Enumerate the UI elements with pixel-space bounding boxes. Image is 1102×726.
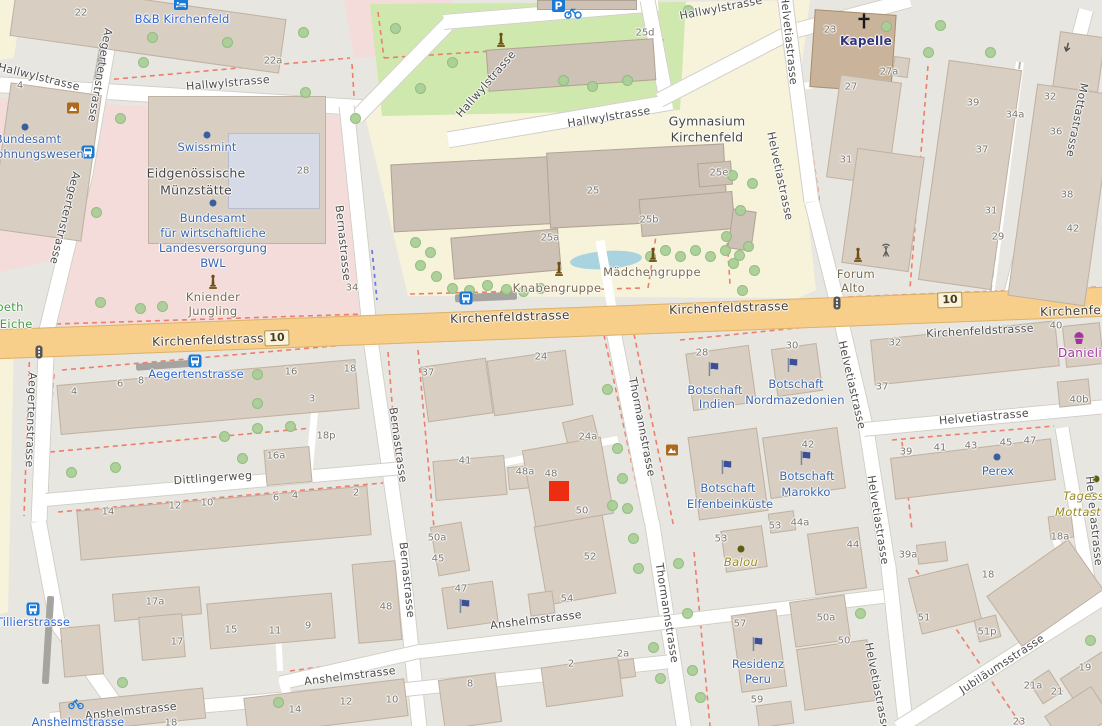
housenumber-label: 34 (346, 283, 359, 294)
housenumber-label: 39a (899, 550, 918, 561)
memorial-icon (648, 247, 658, 264)
housenumber-label: 25 (587, 186, 600, 197)
bus-icon (27, 603, 40, 616)
poi-label: Kniender (186, 290, 240, 304)
tree-icon (390, 23, 401, 34)
flag-icon (458, 598, 473, 614)
artwork-icon (666, 445, 678, 456)
housenumber-label: 31 (985, 206, 998, 217)
housenumber-label: 29 (992, 232, 1005, 243)
housenumber-label: 50a (817, 613, 836, 624)
tree-icon (633, 563, 644, 574)
building (390, 156, 563, 233)
tree-icon (558, 75, 569, 86)
selected-location-marker[interactable] (549, 481, 569, 501)
building (916, 541, 948, 565)
tree-icon (219, 431, 230, 442)
housenumber-label: 47 (1024, 436, 1037, 447)
housenumber-label: 2 (568, 659, 574, 670)
tree-icon (705, 251, 716, 262)
housenumber-label: 17a (146, 597, 165, 608)
housenumber-label: 16a (267, 451, 286, 462)
housenumber-label: 39 (900, 447, 913, 458)
guesthouse-icon (174, 0, 188, 10)
housenumber-label: 52 (584, 552, 597, 563)
housenumber-label: 48a (516, 467, 535, 478)
poi-label: Mottast (1055, 505, 1101, 519)
building (1062, 322, 1102, 368)
tree-icon (425, 247, 436, 258)
housenumber-label: 25a (541, 233, 560, 244)
tree-icon (350, 113, 361, 124)
flag-icon (720, 459, 735, 475)
tree-icon (415, 260, 426, 271)
housenumber-label: 53 (715, 534, 728, 545)
housenumber-label: 44 (847, 540, 860, 551)
housenumber-label: 51p (977, 627, 996, 638)
tree-icon (617, 473, 628, 484)
tree-icon (660, 245, 671, 256)
poi-label: Forum (837, 267, 875, 281)
tree-icon (881, 21, 892, 32)
housenumber-label: 45 (1000, 438, 1013, 449)
housenumber-label: 42 (1067, 224, 1080, 235)
poi-label: Balou (724, 555, 758, 569)
poi-label: B&B Kirchenfeld (135, 12, 230, 26)
housenumber-label: 45 (432, 554, 445, 565)
tree-icon (687, 665, 698, 676)
tree-icon (622, 75, 633, 86)
housenumber-label: 59 (751, 695, 764, 706)
flag-icon (707, 361, 722, 377)
route-badge-10: 10 (937, 292, 963, 309)
route-badge-10: 10 (264, 330, 290, 347)
poi-label: Kapelle (840, 34, 892, 48)
flag-icon (799, 450, 814, 466)
housenumber-label: 41 (934, 443, 947, 454)
housenumber-label: 53 (769, 521, 782, 532)
housenumber-label: 28 (297, 166, 310, 177)
housenumber-label: 3 (309, 394, 315, 405)
tree-icon (587, 81, 598, 92)
housenumber-label: 10 (386, 695, 399, 706)
housenumber-label: 25b (639, 215, 658, 226)
housenumber-label: 42 (802, 440, 815, 451)
poi-dot-icon (22, 124, 29, 131)
housenumber-label: 18a (1051, 532, 1070, 543)
housenumber-label: 10 (201, 498, 214, 509)
tree-icon (735, 205, 746, 216)
memorial-icon (853, 247, 863, 264)
housenumber-label: 12 (169, 501, 182, 512)
housenumber-label: 27 (845, 82, 858, 93)
tree-icon (728, 258, 739, 269)
housenumber-label: 6 (273, 493, 279, 504)
housenumber-label: 24 (535, 352, 548, 363)
housenumber-label: 23 (1013, 717, 1026, 726)
housenumber-label: 2 (353, 488, 359, 499)
poi-label: Marokko (781, 485, 830, 499)
tree-icon (749, 265, 760, 276)
tree-icon (607, 500, 618, 511)
tree-icon (612, 443, 623, 454)
poi-label: Aegertenstrasse (148, 367, 244, 381)
bike-rental-icon (68, 699, 84, 710)
poi-label: Kirchenfeld (671, 130, 744, 145)
tree-icon (648, 642, 659, 653)
tree-icon (447, 283, 458, 294)
housenumber-label: 4 (292, 491, 298, 502)
poi-label: Bundesamt (0, 132, 61, 146)
housenumber-label: 14 (102, 507, 115, 518)
poi-label: Botschaft (768, 377, 823, 391)
housenumber-label: 14 (289, 705, 302, 716)
tree-icon (690, 245, 701, 256)
housenumber-label: 12 (340, 697, 353, 708)
tree-icon (157, 301, 168, 312)
housenumber-label: 27a (880, 67, 899, 78)
poi-label: Münzstätte (160, 183, 232, 198)
housenumber-label: 34a (1006, 110, 1025, 121)
poi-label: BWL (200, 256, 226, 270)
poi-label: Botschaft (779, 469, 834, 483)
housenumber-label: 19 (1079, 663, 1092, 674)
poi-label: Anshelmstrasse (32, 715, 125, 726)
tree-icon (673, 558, 684, 569)
housenumber-label: 37 (976, 145, 989, 156)
artwork-icon (67, 103, 79, 114)
tree-icon (695, 692, 706, 703)
tree-icon (622, 503, 633, 514)
tree-icon (410, 237, 421, 248)
building (60, 624, 104, 677)
tree-icon (675, 251, 686, 262)
poi-label: Bundesamt (180, 211, 247, 225)
housenumber-label: 18 (344, 364, 357, 375)
poi-dot-icon (210, 200, 217, 207)
bus-icon (189, 355, 202, 368)
housenumber-label: 50 (838, 636, 851, 647)
poi-label: Alto (841, 281, 865, 295)
tree-icon (252, 423, 263, 434)
housenumber-label: 21 (1051, 687, 1064, 698)
housenumber-label: 30 (786, 341, 799, 352)
poi-label: für wirtschaftliche (160, 226, 266, 240)
housenumber-label: 32 (1044, 92, 1057, 103)
tree-icon (727, 170, 738, 181)
tree-icon (655, 673, 666, 684)
tree-icon (482, 280, 493, 291)
housenumber-label: 43 (965, 441, 978, 452)
tree-icon (222, 37, 233, 48)
poi-label: Jungling (188, 304, 237, 318)
housenumber-label: 44a (791, 518, 810, 529)
housenumber-label: 51 (918, 613, 931, 624)
housenumber-label: 6 (117, 379, 123, 390)
tree-icon (747, 178, 758, 189)
housenumber-label: 9 (305, 621, 311, 632)
tree-icon (431, 271, 442, 282)
svg-text:P: P (554, 0, 562, 13)
flag-icon (751, 636, 766, 652)
housenumber-label: 32 (889, 338, 902, 349)
tree-icon (147, 32, 158, 43)
poi-label: Botschaft (687, 383, 742, 397)
tree-icon (135, 303, 146, 314)
housenumber-label: 23 (824, 25, 837, 36)
housenumber-label: 16 (285, 367, 298, 378)
tree-icon (237, 453, 248, 464)
housenumber-label: 18p (316, 431, 335, 442)
housenumber-label: 40b (1069, 395, 1088, 406)
housenumber-label: 37 (876, 382, 889, 393)
tree-icon (95, 297, 106, 308)
housenumber-label: 18 (165, 718, 178, 726)
housenumber-label: 54 (561, 594, 574, 605)
poi-label: Indien (699, 397, 735, 411)
housenumber-label: 18 (982, 570, 995, 581)
cupcake-icon (1072, 331, 1086, 345)
housenumber-label: 8 (138, 376, 144, 387)
tree-icon (298, 27, 309, 38)
tree-icon (855, 608, 866, 619)
building (618, 658, 636, 679)
tree-icon (602, 384, 613, 395)
housenumber-label: 48 (380, 602, 393, 613)
bike-parking-icon: P (542, 0, 582, 19)
housenumber-label: 22a (264, 56, 283, 67)
housenumber-label: 47 (455, 584, 468, 595)
tree-icon (115, 113, 126, 124)
tree-icon (721, 231, 732, 242)
housenumber-label: 24a (579, 432, 598, 443)
tree-icon (743, 241, 754, 252)
poi-label: Residenz (732, 657, 784, 671)
traffic-light-icon (834, 297, 841, 310)
housenumber-label: 25d (635, 28, 654, 39)
tree-icon (985, 47, 996, 58)
traffic-light-icon (36, 346, 43, 359)
poi-label: Eidgenössische (147, 166, 246, 181)
tree-icon (252, 369, 263, 380)
housenumber-label: 11 (269, 626, 282, 637)
poi-dot-icon (204, 132, 211, 139)
poi-dot-icon (994, 454, 1001, 461)
tree-icon (447, 57, 458, 68)
housenumber-label: 4 (71, 387, 77, 398)
poi-label: beth (0, 300, 24, 314)
poi-label: Danieli (1058, 346, 1102, 360)
tree-icon (935, 20, 946, 31)
housenumber-label: 15 (225, 625, 238, 636)
poi-label: Tillierstrasse (0, 615, 70, 629)
housenumber-label: 21a (1024, 681, 1043, 692)
tree-icon (138, 57, 149, 68)
housenumber-label: 37 (422, 368, 435, 379)
poi-label: Swissmint (178, 140, 237, 154)
housenumber-label: 36 (1050, 127, 1063, 138)
poi-label: Nordmazedonien (745, 393, 844, 407)
tree-icon (720, 245, 731, 256)
tree-icon (110, 462, 121, 473)
mast-icon (879, 243, 894, 258)
bus-icon (460, 292, 473, 305)
cross-icon (858, 13, 871, 30)
poi-label: -Eiche (0, 317, 33, 331)
tree-icon (415, 83, 426, 94)
housenumber-label: 25e (710, 168, 729, 179)
tree-icon (628, 533, 639, 544)
housenumber-label: 31 (840, 155, 853, 166)
housenumber-label: 39 (967, 98, 980, 109)
tree-icon (66, 467, 77, 478)
housenumber-label: 50 (576, 506, 589, 517)
tree-icon (285, 421, 296, 432)
housenumber-label: 40 (1050, 321, 1063, 332)
poi-label: ohnungswesen (0, 147, 84, 161)
tree-icon (923, 47, 934, 58)
building (352, 560, 403, 644)
building (807, 527, 867, 596)
poi-label: Peru (745, 672, 771, 686)
housenumber-label: 38 (1061, 190, 1074, 201)
memorial-icon (496, 32, 506, 49)
poi-label: Elfenbeinküste (687, 497, 773, 511)
housenumber-label: 8 (467, 679, 473, 690)
tree-icon (300, 87, 311, 98)
building (486, 350, 573, 417)
tree-icon (252, 398, 263, 409)
tree-icon (117, 677, 128, 688)
tree-icon (1085, 635, 1096, 646)
tree-icon (737, 285, 748, 296)
housenumber-label: 4 (17, 81, 23, 92)
poi-label: Mädchengruppe (603, 265, 701, 279)
housenumber-label: 41 (459, 456, 472, 467)
memorial-icon (554, 261, 564, 278)
poi-label: Knabengruppe (513, 281, 602, 295)
poi-label: Perex (982, 464, 1014, 478)
tree-icon (682, 608, 693, 619)
housenumber-label: 50a (428, 533, 447, 544)
poi-label: Landesversorgung (159, 241, 267, 255)
housenumber-label: 22 (75, 8, 88, 19)
housenumber-label: 48 (545, 469, 558, 480)
tree-icon (273, 697, 284, 708)
left-yellow-strip (0, 338, 14, 614)
housenumber-label: 28 (696, 348, 709, 359)
housenumber-label: 17 (171, 637, 184, 648)
poi-label: Gymnasium (669, 114, 746, 129)
flag-icon (786, 357, 801, 373)
memorial-icon (208, 274, 218, 291)
amenity-dot-icon (738, 546, 745, 553)
poi-label: Botschaft (700, 481, 755, 495)
tree-icon (501, 284, 512, 295)
map-canvas[interactable]: PHallwylstrasseHallwylstrasseHallwylstra… (0, 0, 1102, 726)
housenumber-label: 57 (734, 619, 747, 630)
tree-icon (91, 207, 102, 218)
housenumber-label: 2a (617, 649, 630, 660)
poi-label: Tagessc (1063, 489, 1102, 503)
